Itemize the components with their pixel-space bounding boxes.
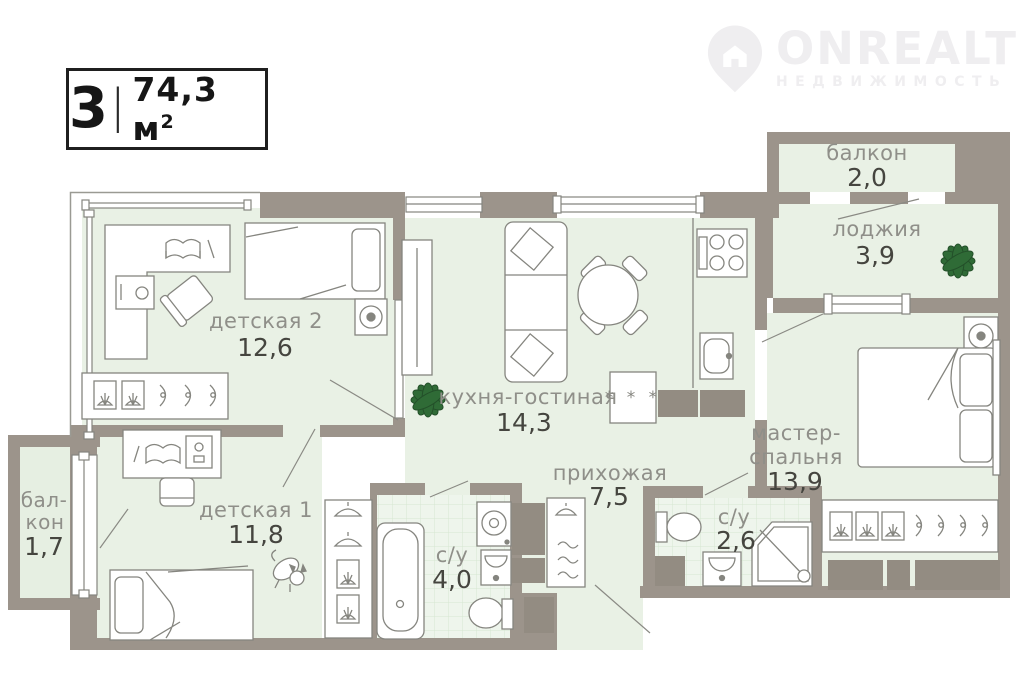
bed-icon [245,223,385,299]
double-bed-icon [858,340,1000,475]
shower-icon [752,522,812,586]
washing-machine-icon [477,502,511,546]
dining-table-icon [578,255,649,337]
bathtub-icon [377,523,424,639]
label-bathroom-main: с/у [436,543,469,567]
sink-main-icon [481,550,511,585]
area-balcony-top: 2,0 [847,163,887,192]
label-balcony-left-line1: бал- [21,488,68,512]
speaker-icon [355,299,387,335]
toilet-small-icon [656,512,701,542]
label-kids2: детская 2 [209,309,323,333]
wardrobe-master-icon [822,500,998,552]
label-master-line2: спальня [749,445,843,469]
wardrobe-icon [82,373,228,419]
area-kids2: 12,6 [237,333,293,362]
label-balcony-top: балкон [826,141,908,165]
area-loggia: 3,9 [855,241,895,270]
label-balcony-left-line2: кон [26,510,65,534]
toilet-main-icon [469,598,513,629]
bed2-icon [110,566,253,640]
kitchen-sink-icon [700,333,733,379]
label-kids1: детская 1 [199,498,313,522]
floorplan-drawing: * * * балкон 2,0 лоджия 3,9 детская 2 12… [0,0,1024,674]
desk2-icon [123,430,221,478]
floorplan-page: 3 | 74,3 м2 ONREALT НЕДВИЖИМОСТЬ [0,0,1024,674]
area-kids1: 11,8 [228,520,284,549]
area-bathroom-small: 2,6 [716,526,756,555]
sink-small-icon [703,552,741,586]
area-hallway: 7,5 [589,482,629,511]
label-master-line1: мастер- [751,421,841,445]
label-loggia: лоджия [833,217,922,241]
area-kitchen-living: 14,3 [496,408,552,437]
area-master: 13,9 [767,467,823,496]
chair2-icon [160,478,194,506]
wardrobe-kids1-icon [325,500,372,638]
area-bathroom-main: 4,0 [432,565,472,594]
sofa-icon [505,222,567,382]
hall-cabinet-icon [547,498,585,587]
stove-icon [697,229,747,277]
label-kitchen-living: кухня-гостиная [438,385,617,409]
area-balcony-left: 1,7 [24,532,64,561]
